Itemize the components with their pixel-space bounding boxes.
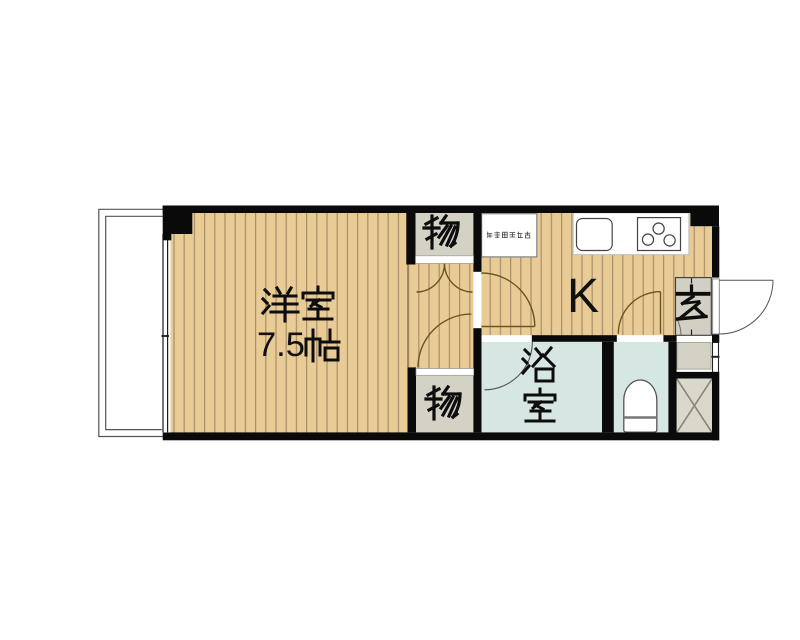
svg-text:K: K: [567, 270, 599, 323]
svg-text:7.5: 7.5: [257, 326, 305, 364]
